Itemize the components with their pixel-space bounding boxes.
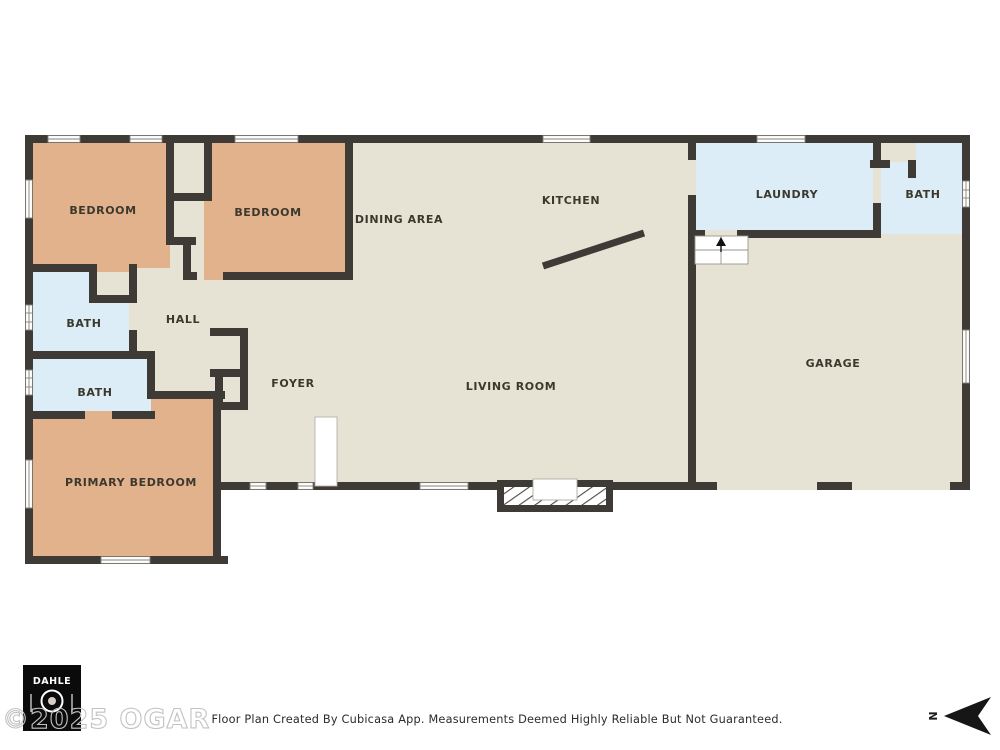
entry-door <box>533 479 577 500</box>
room-label-living-room: LIVING ROOM <box>466 380 557 393</box>
room-label-bath-lower: BATH <box>77 386 112 399</box>
north-label: N <box>926 711 939 720</box>
room-label-garage: GARAGE <box>806 357 861 370</box>
laundry-area <box>692 139 877 234</box>
north-compass: N <box>926 697 991 735</box>
room-label-bath-top-right: BATH <box>905 188 940 201</box>
room-label-bedroom-2: BEDROOM <box>234 206 301 219</box>
room-label-bedroom-1: BEDROOM <box>69 204 136 217</box>
copyright-watermark: ©2025 OGAR <box>2 704 210 735</box>
foyer-door-leaf <box>315 417 337 486</box>
bath-upper-closet-area <box>97 272 129 295</box>
room-label-kitchen: KITCHEN <box>542 194 600 207</box>
room-label-primary-bedroom: PRIMARY BEDROOM <box>65 476 197 489</box>
brand-logo-text: DAHLE <box>33 676 71 687</box>
room-label-laundry: LAUNDRY <box>756 188 819 201</box>
footer-disclaimer: Floor Plan Created By Cubicasa App. Meas… <box>211 713 782 726</box>
north-arrow-icon <box>944 697 991 735</box>
room-label-dining-area: DINING AREA <box>355 213 443 226</box>
room-label-foyer: FOYER <box>271 377 314 390</box>
stairs <box>695 236 748 264</box>
room-label-hall: HALL <box>166 313 200 326</box>
floor-plan-canvas: BEDROOM BEDROOM DINING AREA KITCHEN LAUN… <box>0 0 1000 750</box>
floor-plan-page: BEDROOM BEDROOM DINING AREA KITCHEN LAUN… <box>0 0 1000 750</box>
entry-porch <box>497 479 613 512</box>
room-label-bath-upper: BATH <box>66 317 101 330</box>
